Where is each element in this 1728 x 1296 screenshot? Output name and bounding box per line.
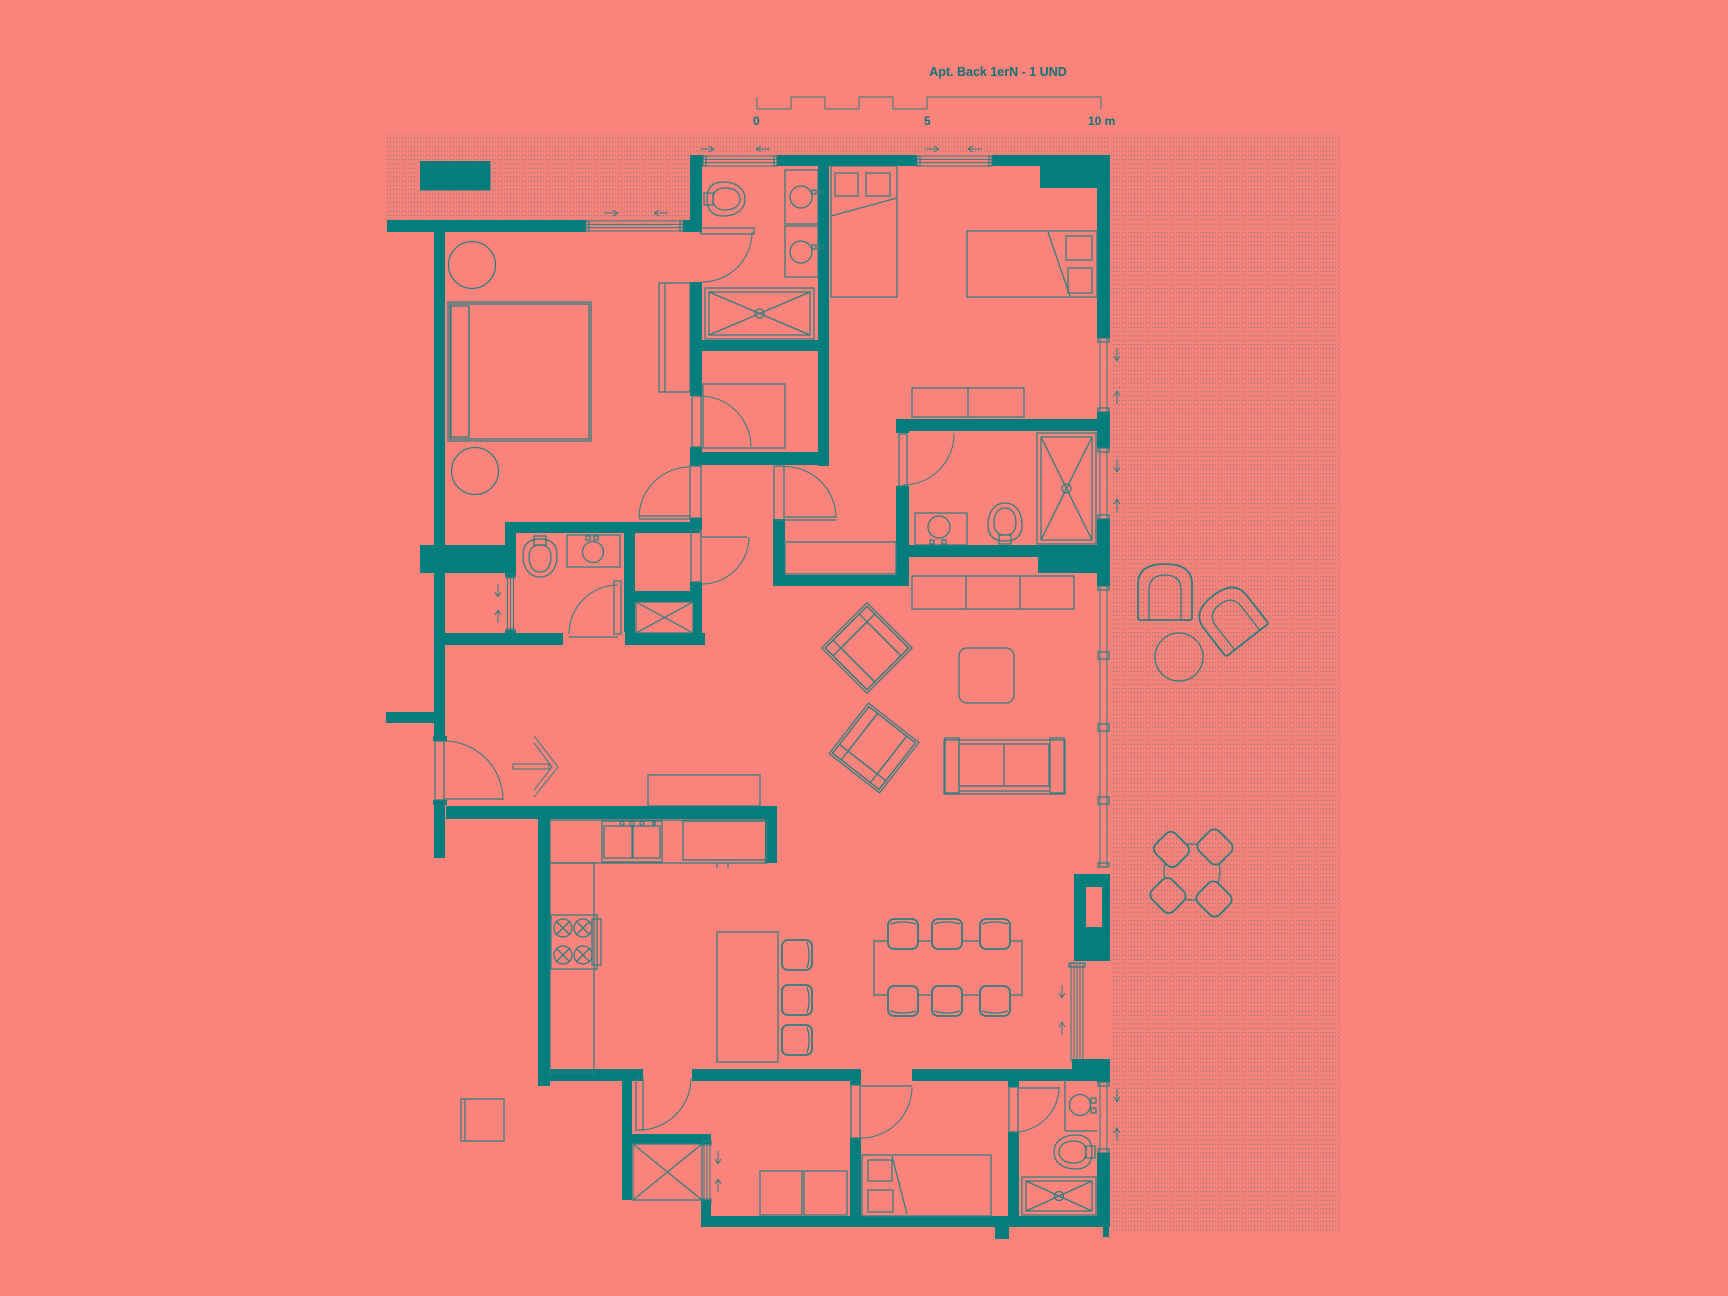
svg-text:10 m: 10 m — [1088, 114, 1115, 128]
svg-text:0: 0 — [753, 114, 760, 128]
svg-text:Apt. Back 1erN - 1 UND: Apt. Back 1erN - 1 UND — [929, 65, 1067, 79]
svg-text:5: 5 — [924, 114, 931, 128]
